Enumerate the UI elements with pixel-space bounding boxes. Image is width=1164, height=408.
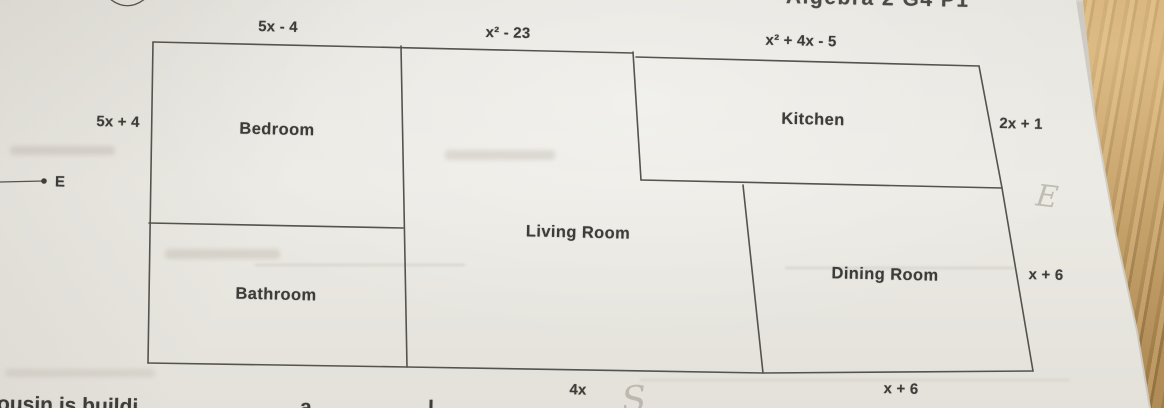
wall-top-edge (153, 42, 633, 53)
wall-bedroom-bathroom-divider (149, 223, 403, 228)
dimension-kitchen-right: 2x + 1 (999, 115, 1043, 133)
dimension-dining-bottom: x + 6 (883, 380, 918, 398)
wall-bedroom-living-divider (401, 46, 407, 367)
pencil-mark-e: E (1034, 178, 1060, 215)
dimension-living-top: x² - 23 (485, 24, 530, 42)
dimension-kitchen-top: x² + 4x - 5 (765, 32, 836, 51)
wall-kitchen-top-edge (636, 57, 979, 66)
dimension-bedroom-left: 5x + 4 (96, 113, 140, 131)
wall-kitchen-left-edge (633, 52, 641, 180)
bottom-text-fragment: l (428, 397, 434, 408)
cutoff-circle-mark (110, 0, 146, 6)
point-e-label: E (55, 173, 65, 190)
floor-plan-drawing (0, 0, 1164, 408)
wall-right-edge (979, 66, 1033, 371)
bottom-text-fragment: ousin is buildi (0, 393, 138, 408)
dimension-living-bottom: 4x (569, 381, 586, 398)
wall-left-edge (148, 42, 153, 363)
room-label-kitchen: Kitchen (781, 110, 845, 130)
room-label-bedroom: Bedroom (239, 120, 315, 141)
room-label-bathroom: Bathroom (235, 285, 317, 306)
worksheet-photo: Bedroom Bathroom Living Room Kitchen Din… (0, 0, 1164, 408)
pencil-mark-s: S (620, 379, 647, 408)
wall-living-dining-divider (743, 185, 763, 373)
bottom-text-fragment: a (300, 396, 312, 408)
point-e-dot (41, 178, 47, 184)
dimension-dining-right: x + 6 (1028, 266, 1063, 284)
dimension-bedroom-top: 5x - 4 (258, 18, 298, 36)
room-label-living: Living Room (526, 222, 631, 243)
point-e-leader-line (0, 181, 44, 182)
wall-bottom-edge (148, 363, 1033, 373)
wall-kitchen-bottom-edge (641, 180, 1002, 188)
room-label-dining: Dining Room (831, 264, 938, 285)
